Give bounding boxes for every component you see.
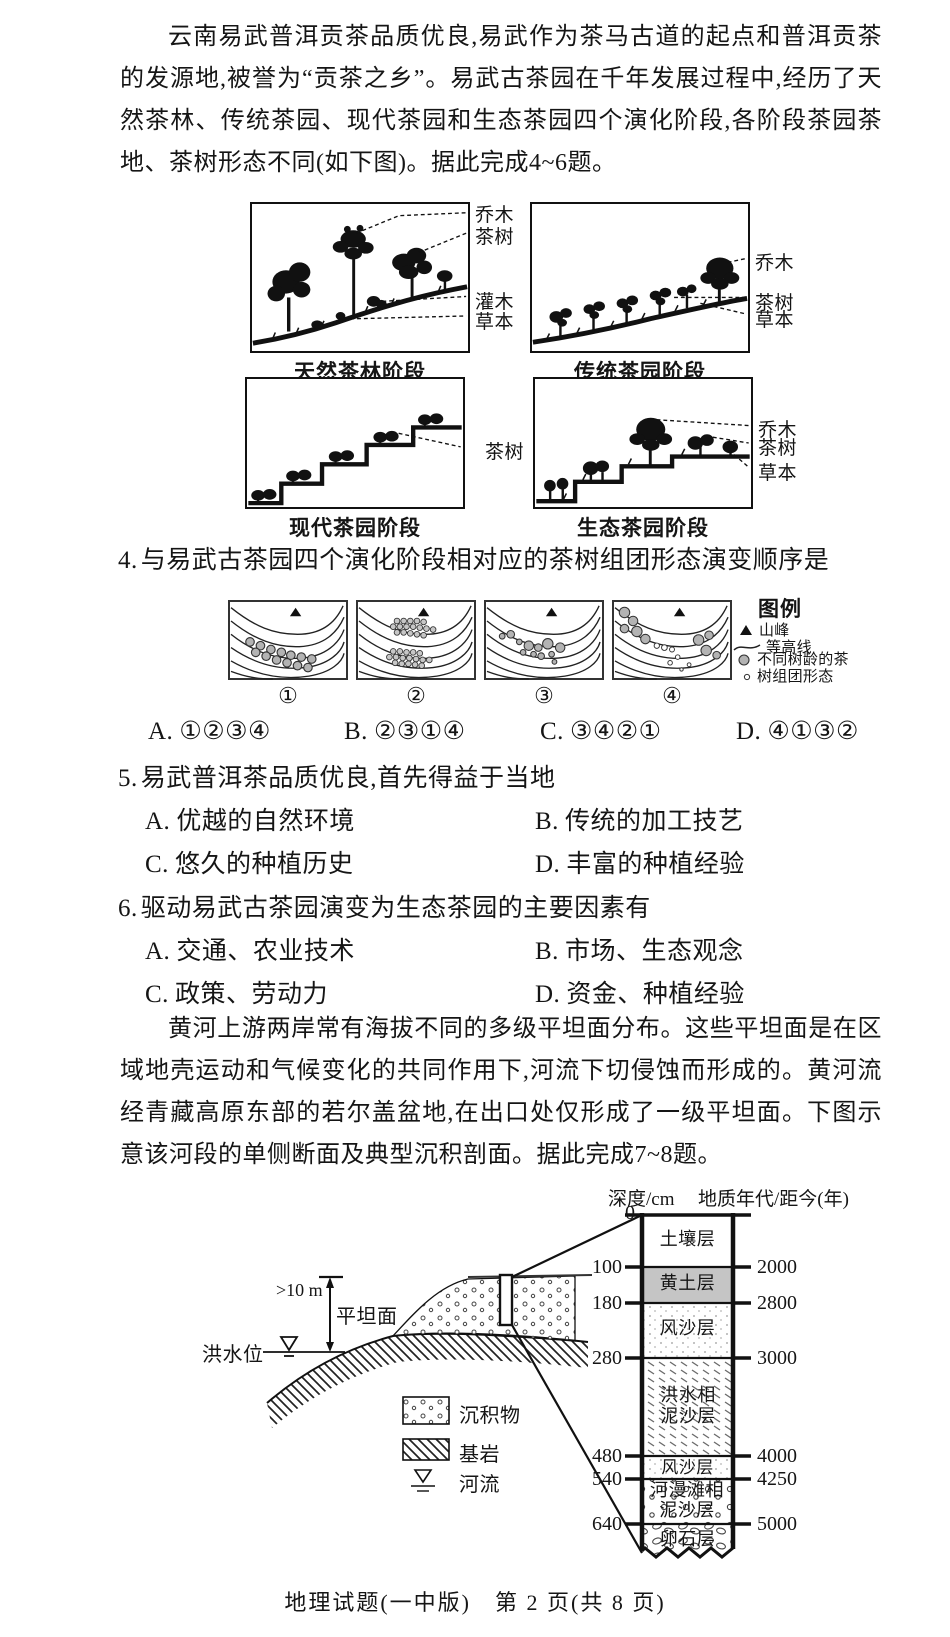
label-arbor-2: 乔木: [755, 248, 794, 275]
contour-line-icon: [733, 641, 761, 653]
modern-tea-garden-drawing: [247, 379, 463, 507]
traditional-tea-garden-drawing: [532, 204, 748, 351]
layer-soil: 土壤层: [642, 1229, 733, 1250]
question-4-stem: 4.与易武古茶园四个演化阶段相对应的茶树组团形态演变顺序是: [118, 540, 829, 576]
age-4250: 4250: [757, 1468, 797, 1491]
legend-bedrock-label: 基岩: [459, 1438, 500, 1467]
depth-180: 180: [562, 1292, 622, 1315]
q5-option-d: D.丰富的种植经验: [535, 844, 745, 880]
panel-traditional-tea-garden: [530, 202, 750, 353]
depth-0: 0: [575, 1202, 635, 1225]
age-5000: 5000: [757, 1513, 797, 1536]
contour-panel-1: [228, 600, 348, 680]
contour-panel-2: [356, 600, 476, 680]
age-2000: 2000: [757, 1256, 797, 1279]
exam-page: 云南易武普洱贡茶品质优良,易武作为茶马古道的起点和普洱贡茶的发源地,被誉为“贡茶…: [0, 0, 950, 1637]
label-herb-4: 草本: [758, 458, 797, 485]
contour-panel-3-drawing: [486, 602, 602, 678]
question-5-number: 5.: [118, 765, 138, 792]
contour-panel-3: [484, 600, 604, 680]
panel-modern-tea-garden: [245, 377, 465, 509]
contour-panel-4-label: ④: [612, 683, 732, 709]
contour-panel-4-drawing: [614, 602, 730, 678]
legend-cluster-label: 不同树龄的茶树组团形态: [757, 652, 849, 686]
height-label: >10 m: [276, 1280, 323, 1301]
label-herb-2: 草本: [755, 305, 794, 332]
contour-panel-4: [612, 600, 732, 680]
label-tea-tree-3: 茶树: [485, 437, 524, 464]
q4-option-c: C.③④②①: [540, 716, 662, 746]
layer-windsand-1: 风沙层: [642, 1318, 733, 1339]
layer-flood-silt: 洪水相泥沙层: [657, 1385, 719, 1427]
legend-river-label: 河流: [459, 1468, 500, 1497]
passage-tea: 云南易武普洱贡茶品质优良,易武作为茶马古道的起点和普洱贡茶的发源地,被誉为“贡茶…: [120, 16, 882, 184]
question-6-number: 6.: [118, 895, 138, 922]
question-4-text: 与易武古茶园四个演化阶段相对应的茶树组团形态演变顺序是: [141, 547, 830, 574]
contour-panel-1-label: ①: [228, 683, 348, 709]
q6-option-c: C.政策、劳动力: [145, 974, 328, 1010]
contour-panel-2-drawing: [358, 602, 474, 678]
depth-640: 640: [562, 1513, 622, 1536]
layer-pebble: 卵石层: [642, 1529, 733, 1550]
q4-option-b: B.②③①④: [344, 716, 466, 746]
panel-ecological-tea-garden: [533, 377, 753, 509]
age-header: 地质年代/距今(年): [698, 1184, 849, 1211]
flat-surface-label: 平坦面: [336, 1300, 398, 1329]
question-4-number: 4.: [118, 547, 138, 574]
river-section-figure: 洪水位 >10 m 平坦面 沉积物 基岩 河流 深度/cm 地质年代/距今(年)…: [130, 1160, 890, 1570]
question-6-text: 驱动易武古茶园演变为生态茶园的主要因素有: [141, 895, 651, 922]
layer-windsand-2: 风沙层: [642, 1457, 733, 1478]
q5-option-b: B.传统的加工技艺: [535, 801, 743, 837]
q6-option-b: B.市场、生态观念: [535, 931, 743, 967]
contour-panel-2-label: ②: [356, 683, 476, 709]
label-herb-1: 草本: [475, 307, 514, 334]
contour-panel-1-drawing: [230, 602, 346, 678]
legend-sediment-label: 沉积物: [459, 1399, 521, 1428]
age-3000: 3000: [757, 1347, 797, 1370]
q5-option-c: C.悠久的种植历史: [145, 844, 353, 880]
depth-540: 540: [562, 1468, 622, 1491]
caption-ecological-stage: 生态茶园阶段: [533, 512, 753, 542]
contour-panel-3-label: ③: [484, 683, 604, 709]
q6-option-d: D.资金、种植经验: [535, 974, 745, 1010]
age-4000: 4000: [757, 1445, 797, 1468]
layer-loess: 黄土层: [642, 1273, 733, 1294]
q5-option-a: A.优越的自然环境: [145, 801, 355, 837]
contour-map-figure: ① ② ③ ④ 图例 山峰 等高线 不同树龄的茶树组团形态: [228, 595, 908, 710]
caption-modern-stage: 现代茶园阶段: [245, 512, 465, 542]
q4-option-a: A.①②③④: [148, 716, 271, 746]
panel-natural-tea-forest: [250, 202, 470, 353]
page-footer: 地理试题(一中版) 第 2 页(共 8 页): [0, 1585, 950, 1617]
layer-floodplain-silt: 河漫滩相泥沙层: [647, 1480, 727, 1520]
tea-evolution-figure: 乔木 茶树 灌木 草本 乔木 茶树 草本 天然茶林阶段 传统茶园阶段: [245, 200, 865, 540]
age-2800: 2800: [757, 1292, 797, 1315]
label-tea-tree-1: 茶树: [475, 222, 514, 249]
natural-tea-forest-drawing: [252, 204, 468, 351]
label-tea-tree-4: 茶树: [758, 433, 797, 460]
peak-icon: [738, 624, 754, 636]
depth-280: 280: [562, 1347, 622, 1370]
question-5-stem: 5.易武普洱茶品质优良,首先得益于当地: [118, 758, 556, 794]
passage-yellow-river: 黄河上游两岸常有海拔不同的多级平坦面分布。这些平坦面是在区域地壳运动和气候变化的…: [120, 1008, 882, 1176]
depth-100: 100: [562, 1256, 622, 1279]
tea-cluster-icon: [736, 652, 752, 686]
question-6-stem: 6.驱动易武古茶园演变为生态茶园的主要因素有: [118, 888, 651, 924]
contour-legend-cluster: 不同树龄的茶树组团形态: [736, 652, 849, 686]
q6-option-a: A.交通、农业技术: [145, 931, 355, 967]
question-5-text: 易武普洱茶品质优良,首先得益于当地: [141, 765, 556, 792]
ecological-tea-garden-drawing: [535, 379, 751, 507]
flood-level-label: 洪水位: [202, 1338, 264, 1367]
depth-480: 480: [562, 1445, 622, 1468]
q4-option-d: D.④①③②: [736, 716, 859, 746]
